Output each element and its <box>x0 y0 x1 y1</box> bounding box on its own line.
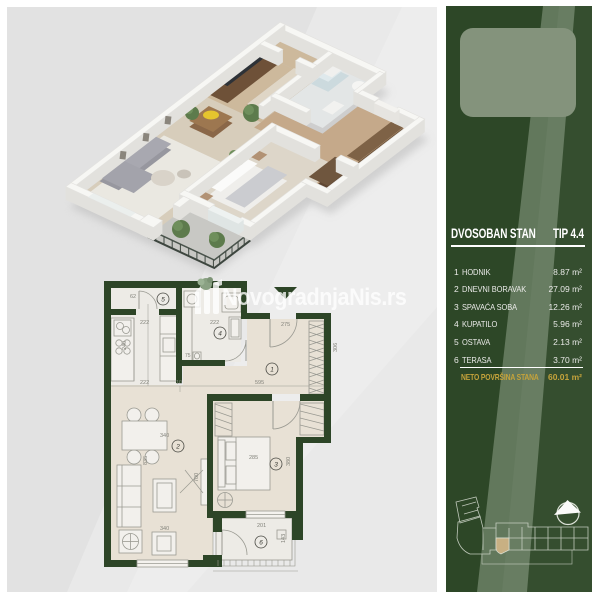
svg-text:700: 700 <box>194 473 200 482</box>
svg-text:3: 3 <box>274 461 278 468</box>
svg-text:275: 275 <box>281 322 290 328</box>
svg-text:5: 5 <box>161 296 165 303</box>
svg-text:222: 222 <box>210 320 219 326</box>
svg-text:10: 10 <box>176 380 182 386</box>
svg-text:835: 835 <box>143 456 149 465</box>
svg-text:4: 4 <box>218 330 222 337</box>
svg-text:75: 75 <box>185 353 191 359</box>
svg-text:340: 340 <box>160 526 169 532</box>
svg-text:62: 62 <box>130 294 136 300</box>
svg-text:240: 240 <box>122 341 128 350</box>
svg-text:6: 6 <box>259 539 263 546</box>
svg-text:2: 2 <box>175 443 180 450</box>
svg-text:201: 201 <box>257 523 266 529</box>
svg-text:306: 306 <box>333 343 339 352</box>
svg-text:143: 143 <box>281 534 287 543</box>
svg-text:380: 380 <box>286 457 292 466</box>
svg-text:340: 340 <box>160 433 169 439</box>
svg-text:222: 222 <box>140 380 149 386</box>
svg-text:595: 595 <box>255 380 264 386</box>
svg-text:1: 1 <box>270 366 274 373</box>
svg-text:285: 285 <box>249 455 258 461</box>
svg-text:222: 222 <box>140 320 149 326</box>
